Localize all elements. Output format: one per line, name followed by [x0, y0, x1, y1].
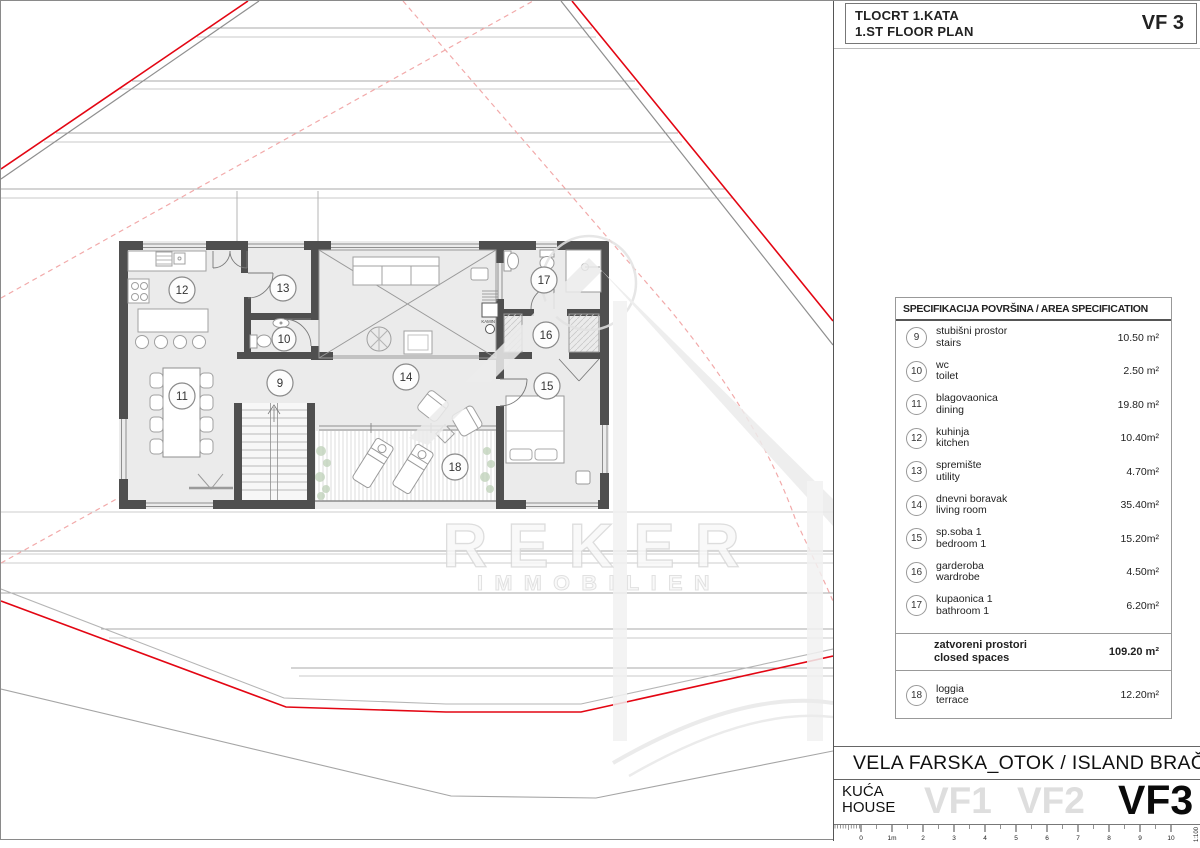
drawing-title-hr: TLOCRT 1.KATA [855, 8, 974, 24]
room-number-badge: 12 [906, 428, 927, 449]
table-row: 10 wctoilet 2.50 m² [896, 355, 1171, 389]
room-area: 19.80 m² [1118, 399, 1159, 411]
svg-text:9: 9 [1138, 835, 1142, 842]
table-row: 17 kupaonica 1bathroom 1 6.20m² [896, 589, 1171, 623]
room-name-en: dining [936, 405, 1118, 417]
svg-text:0: 0 [859, 835, 863, 842]
table-row: 11 blagovaonicadining 19.80 m² [896, 388, 1171, 422]
building-label-en: HOUSE [842, 800, 895, 816]
svg-text:8: 8 [1107, 835, 1111, 842]
room-number-badge: 15 [906, 528, 927, 549]
room-area: 6.20m² [1126, 600, 1159, 612]
scale-fine-ticks [835, 825, 859, 830]
room-marker-11: 11 [169, 383, 195, 409]
svg-text:12: 12 [176, 285, 189, 297]
room-marker-12: 12 [169, 277, 195, 303]
room-area: 10.50 m² [1118, 332, 1159, 344]
watermark-sub-text: IMMOBILIEN [477, 571, 721, 595]
room-number-badge: 10 [906, 361, 927, 382]
scale-bar: 0 1m 2 3 4 5 6 7 8 9 10 1:100 [834, 824, 1200, 844]
room-marker-16: 16 [533, 322, 559, 348]
table-row: 14 dnevni boravakliving room 35.40m² [896, 489, 1171, 523]
room-name-en: bathroom 1 [936, 606, 1126, 618]
svg-text:13: 13 [277, 283, 290, 295]
room-name-hr: stubišni prostor [936, 326, 1118, 338]
svg-text:6: 6 [1045, 835, 1049, 842]
room-area: 12.20m² [1120, 689, 1159, 701]
room-marker-9: 9 [267, 370, 293, 396]
table-row: 12 kuhinjakitchen 10.40m² [896, 422, 1171, 456]
closed-spaces-total-row: zatvoreni prostoriclosed spaces 109.20 m… [896, 633, 1171, 671]
variant-ghost-vf1: VF1 [924, 780, 992, 822]
area-specification-table: SPECIFIKACIJA POVRŠINA / AREA SPECIFICAT… [895, 297, 1172, 719]
variant-code: VF 3 [1142, 12, 1184, 35]
building-label-hr: KUĆA [842, 784, 895, 800]
table-row: 13 spremišteutility 4.70m² [896, 455, 1171, 489]
svg-text:11: 11 [176, 391, 188, 403]
svg-text:10: 10 [1167, 835, 1175, 842]
drawing-title-en: 1.ST FLOOR PLAN [855, 24, 974, 40]
room-area: 2.50 m² [1123, 365, 1159, 377]
room-number-badge: 14 [906, 495, 927, 516]
svg-text:4: 4 [983, 835, 987, 842]
room-name-en: utility [936, 472, 1126, 484]
variant-ghost-vf2: VF2 [1017, 780, 1085, 822]
title-block: TLOCRT 1.KATA 1.ST FLOOR PLAN VF 3 [845, 3, 1197, 44]
svg-text:5: 5 [1014, 835, 1018, 842]
drawing-sheet: KAMIN [0, 0, 1200, 840]
svg-text:14: 14 [400, 372, 413, 384]
room-area: 4.50m² [1126, 566, 1159, 578]
room-number-badge: 16 [906, 562, 927, 583]
svg-text:10: 10 [278, 334, 291, 346]
svg-text:3: 3 [952, 835, 956, 842]
svg-text:15: 15 [541, 381, 554, 393]
table-row: 18 loggiaterrace 12.20m² [896, 679, 1171, 713]
svg-text:17: 17 [538, 275, 551, 287]
table-row: 9 stubišni prostorstairs 10.50 m² [896, 321, 1171, 355]
room-name-en: kitchen [936, 438, 1120, 450]
room-area: 10.40m² [1120, 432, 1159, 444]
room-marker-15: 15 [534, 373, 560, 399]
table-row: 15 sp.soba 1bedroom 1 15.20m² [896, 522, 1171, 556]
room-name-en: living room [936, 505, 1120, 517]
room-marker-17: 17 [531, 267, 557, 293]
variant-row: KUĆA HOUSE VF1 VF2 VF3 [834, 780, 1200, 824]
room-marker-13: 13 [270, 275, 296, 301]
room-area: 15.20m² [1120, 533, 1159, 545]
total-label-hr: zatvoreni prostori [934, 639, 1109, 652]
room-number-badge: 9 [906, 327, 927, 348]
room-number-badge: 18 [906, 685, 927, 706]
room-name-en: terrace [936, 695, 1120, 707]
svg-text:9: 9 [277, 378, 283, 390]
room-name-hr: spremište [936, 460, 1126, 472]
kamin-label: KAMIN [481, 319, 495, 324]
room-number-badge: 13 [906, 461, 927, 482]
project-title: VELA FARSKA_OTOK / ISLAND BRAČ [834, 747, 1200, 780]
divider [834, 48, 1200, 49]
svg-text:7: 7 [1076, 835, 1080, 842]
variant-active-vf3: VF3 [1118, 777, 1193, 824]
room-name-en: stairs [936, 338, 1118, 350]
room-area: 4.70m² [1126, 466, 1159, 478]
room-marker-14: 14 [393, 364, 419, 390]
room-name-hr: wc [936, 360, 1123, 372]
svg-text:18: 18 [449, 462, 462, 474]
room-name-en: wardrobe [936, 572, 1126, 584]
room-name-en: bedroom 1 [936, 539, 1120, 551]
sheet-footer: VELA FARSKA_OTOK / ISLAND BRAČ KUĆA HOUS… [834, 746, 1200, 841]
svg-text:16: 16 [540, 330, 553, 342]
room-number-badge: 17 [906, 595, 927, 616]
total-area: 109.20 m² [1109, 646, 1159, 658]
title-panel: TLOCRT 1.KATA 1.ST FLOOR PLAN VF 3 SPECI… [833, 1, 1200, 841]
total-label-en: closed spaces [934, 652, 1109, 665]
room-number-badge: 11 [906, 394, 927, 415]
site-plan-drawing: KAMIN [1, 1, 833, 841]
room-area: 35.40m² [1120, 499, 1159, 511]
room-marker-10: 10 [272, 327, 296, 351]
room-name-en: toilet [936, 371, 1123, 383]
room-marker-18: 18 [442, 454, 468, 480]
table-row: 16 garderobawardrobe 4.50m² [896, 556, 1171, 590]
svg-text:2: 2 [921, 835, 925, 842]
scale-labels: 0 1m 2 3 4 5 6 7 8 9 10 [859, 835, 1175, 842]
svg-text:1m: 1m [887, 835, 896, 842]
table-header: SPECIFIKACIJA POVRŠINA / AREA SPECIFICAT… [896, 298, 1171, 321]
